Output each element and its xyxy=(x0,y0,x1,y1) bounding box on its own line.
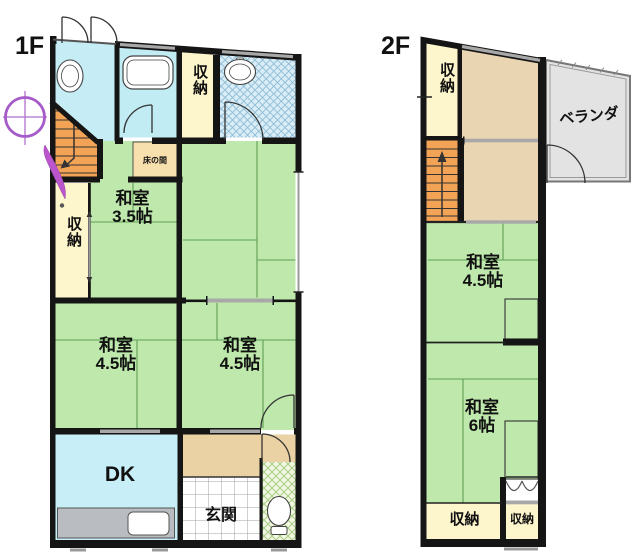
washitsu45-2f-label: 和室 4.5帖 xyxy=(428,254,538,291)
entrance-door-right xyxy=(91,17,117,43)
dk-slider-band xyxy=(100,430,160,434)
tan-room-slider xyxy=(464,139,538,143)
washitsu6-2f-label: 和室 6帖 xyxy=(427,399,537,436)
genkan-label: 玄関 xyxy=(186,501,256,525)
entrance-door-left xyxy=(62,17,88,43)
closet-door-zone xyxy=(506,479,538,503)
stub-2f xyxy=(504,548,538,551)
floor2-label: 2F xyxy=(381,32,410,61)
storage-left-1f-label: 収納 xyxy=(63,216,84,248)
storage-top-1f-label: 収納 xyxy=(189,64,210,96)
storage-br-track xyxy=(506,501,538,505)
tan-room-2f-floor xyxy=(460,47,538,222)
washitsu45-left-label: 和室 4.5帖 xyxy=(60,337,172,374)
kitchen-sink-icon xyxy=(128,512,169,535)
stubs-1f xyxy=(70,549,287,552)
hall-slider-band xyxy=(210,430,260,434)
storage-br-2f-label: 収納 xyxy=(506,510,538,527)
floor1-plan xyxy=(3,17,304,552)
floor1-label: 1F xyxy=(15,32,44,61)
storage-top-2f-label: 収納 xyxy=(436,62,457,94)
washitsu45-right-label: 和室 4.5帖 xyxy=(184,337,296,374)
fusuma-band-upper xyxy=(207,299,273,303)
storage-bl-2f-label: 収納 xyxy=(428,508,501,529)
dk-label: DK xyxy=(88,463,152,487)
toilet-bowl-icon xyxy=(268,497,291,526)
washitsu45-2f-slider xyxy=(466,220,536,223)
toilet-tank-icon xyxy=(271,527,287,535)
washitsu35-label: 和室 3.5帖 xyxy=(88,190,177,227)
tokonoma-label: 床の間 xyxy=(133,155,177,166)
floorplan-page: 1F 2F 収納 収納 床の間 和室 3.5帖 和室 4.5帖 和室 4.5帖 … xyxy=(0,0,640,552)
